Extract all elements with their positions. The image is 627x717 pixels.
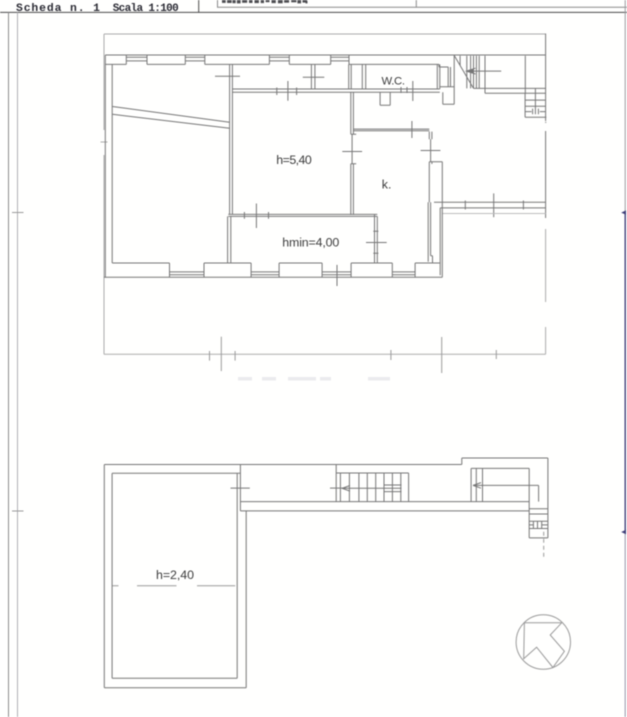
svg-text:hmin=4,00: hmin=4,00 [282,235,339,249]
svg-text:W.C.: W.C. [382,76,406,88]
svg-text:h=5,40: h=5,40 [276,153,312,167]
svg-text:Scheda n. 1: Scheda n. 1 [16,3,100,15]
svg-text:Scala 1:100: Scala 1:100 [113,3,179,15]
svg-text:k.: k. [382,178,392,192]
svg-text:h=2,40: h=2,40 [156,568,194,582]
